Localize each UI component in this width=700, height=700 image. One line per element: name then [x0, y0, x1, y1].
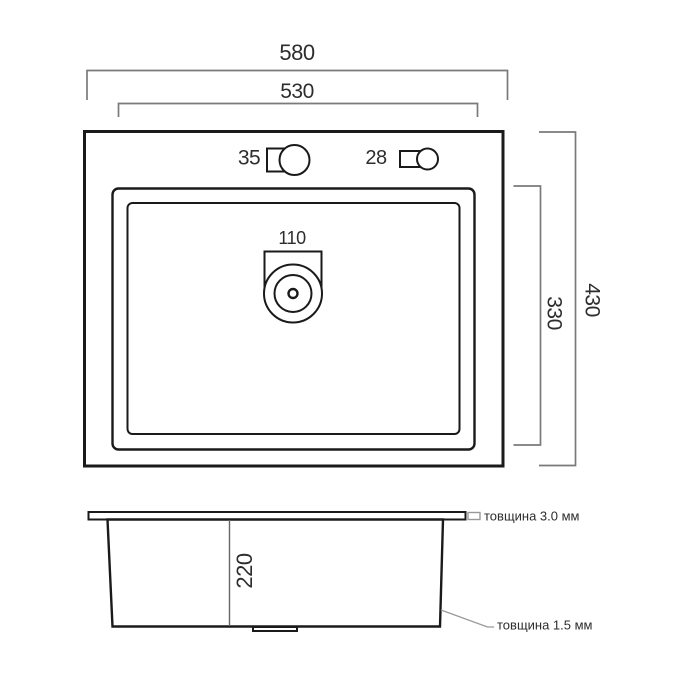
dim-label-accessory-hole: 28	[365, 148, 386, 168]
faucet-hole-35-circle	[280, 145, 310, 175]
dim-label-bowl-width: 530	[280, 81, 314, 102]
dim-label-outer-depth: 430	[582, 283, 603, 317]
faucet-hole-35	[267, 145, 310, 175]
sink-top-view	[85, 71, 576, 467]
dim-label-bowl-height: 220	[234, 553, 256, 588]
drain-circle-outer	[264, 265, 322, 323]
accessory-hole-28-circle	[417, 149, 438, 170]
sink-technical-drawing: 580 530 430 330 220 35 28 110 товщина 3.…	[0, 0, 700, 700]
drain-stub	[253, 627, 297, 631]
dim-label-bowl-depth: 330	[544, 296, 565, 330]
dim-bracket-530	[119, 104, 478, 118]
dim-label-outer-width: 580	[279, 42, 314, 64]
rim-thickness-swatch	[468, 513, 480, 520]
note-rim-thickness: товщина 3.0 мм	[484, 510, 579, 523]
sink-side-view	[89, 512, 495, 631]
dim-label-faucet-hole: 35	[238, 148, 260, 169]
accessory-hole-28	[400, 149, 438, 170]
note-wall-thickness: товщина 1.5 мм	[497, 619, 592, 632]
side-body	[108, 520, 444, 627]
dim-label-drain-hole: 110	[278, 229, 305, 247]
dim-bracket-330	[514, 186, 541, 445]
drawing-linework	[0, 0, 700, 700]
wall-thickness-leader-line	[441, 610, 494, 627]
